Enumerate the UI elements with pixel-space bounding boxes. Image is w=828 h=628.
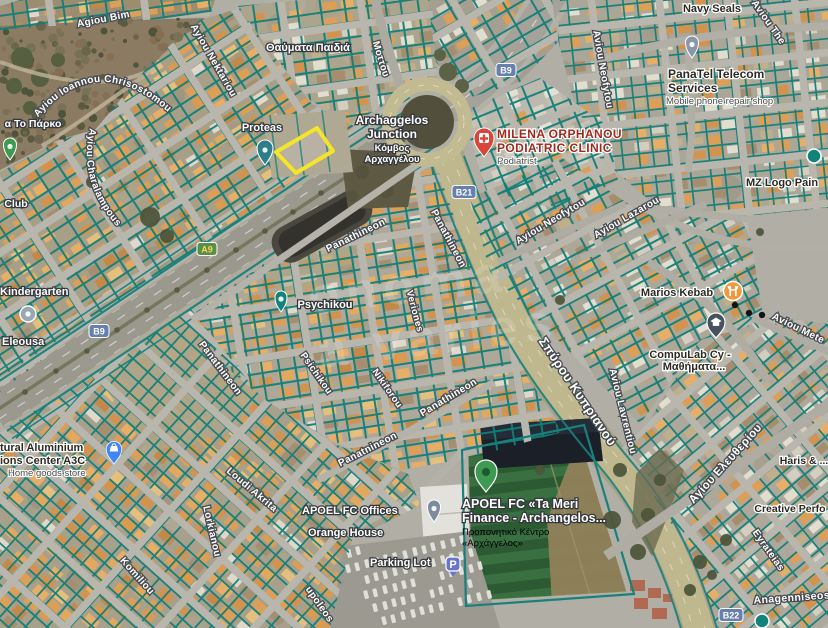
svg-text:Junction: Junction (367, 127, 417, 141)
svg-text:tural Aluminium: tural Aluminium (0, 442, 84, 454)
svg-text:Kindergarten: Kindergarten (0, 286, 69, 298)
svg-text:B21: B21 (456, 188, 473, 198)
svg-text:B9: B9 (93, 327, 105, 337)
svg-text:MILENA ORPHANOU: MILENA ORPHANOU (497, 127, 622, 141)
svg-text:Creative Perfo: Creative Perfo (754, 503, 825, 515)
svg-text:APOEL FC Offices: APOEL FC Offices (302, 505, 398, 517)
svg-text:Θαύματα Παιδιά: Θαύματα Παιδιά (266, 42, 350, 54)
svg-text:P: P (449, 559, 456, 571)
svg-text:Αρχαγγέλου: Αρχαγγέλου (364, 154, 420, 165)
svg-text:Parking Lot: Parking Lot (370, 557, 431, 569)
svg-text:Μαθήματα...: Μαθήματα... (663, 361, 726, 373)
svg-text:Haris & ...: Haris & ... (780, 455, 828, 467)
svg-text:Κόμβος: Κόμβος (375, 143, 410, 154)
svg-text:CompuLab Cy -: CompuLab Cy - (649, 349, 731, 361)
svg-text:Eleousa: Eleousa (2, 336, 45, 348)
svg-text:Services: Services (668, 81, 718, 95)
svg-text:APOEL FC «Ta Meri: APOEL FC «Ta Meri (462, 497, 578, 511)
svg-text:α Το Πάρκο: α Το Πάρκο (5, 118, 62, 130)
svg-text:«Αρχάγγελος»: «Αρχάγγελος» (462, 538, 523, 549)
svg-text:Προπονητικό Κέντρο: Προπονητικό Κέντρο (462, 527, 549, 538)
svg-text:Psychikou: Psychikou (297, 299, 352, 311)
svg-text:B9: B9 (500, 66, 512, 76)
svg-text:PanaTel Telecom: PanaTel Telecom (668, 67, 764, 81)
svg-text:ions Center A3C: ions Center A3C (0, 455, 85, 467)
svg-text:Proteas: Proteas (242, 122, 282, 134)
svg-text:B22: B22 (723, 611, 740, 621)
svg-text:PODIATRIC CLINIC: PODIATRIC CLINIC (497, 141, 612, 155)
svg-text:Podiatrist: Podiatrist (497, 156, 537, 167)
svg-text:Mobile phone repair shop: Mobile phone repair shop (666, 96, 773, 107)
svg-text:Marios Kebab: Marios Kebab (641, 287, 713, 299)
svg-text:MZ Logo Pain: MZ Logo Pain (746, 177, 818, 189)
svg-text:Archaggelos: Archaggelos (356, 113, 429, 127)
svg-text:Navy Seals: Navy Seals (683, 3, 741, 15)
svg-text:Orange House: Orange House (308, 527, 383, 539)
svg-text:Home goods store: Home goods store (8, 468, 86, 479)
svg-text:A9: A9 (201, 245, 213, 255)
svg-text:Finance - Archangelos...: Finance - Archangelos... (462, 511, 606, 525)
svg-text:Club: Club (4, 198, 27, 210)
